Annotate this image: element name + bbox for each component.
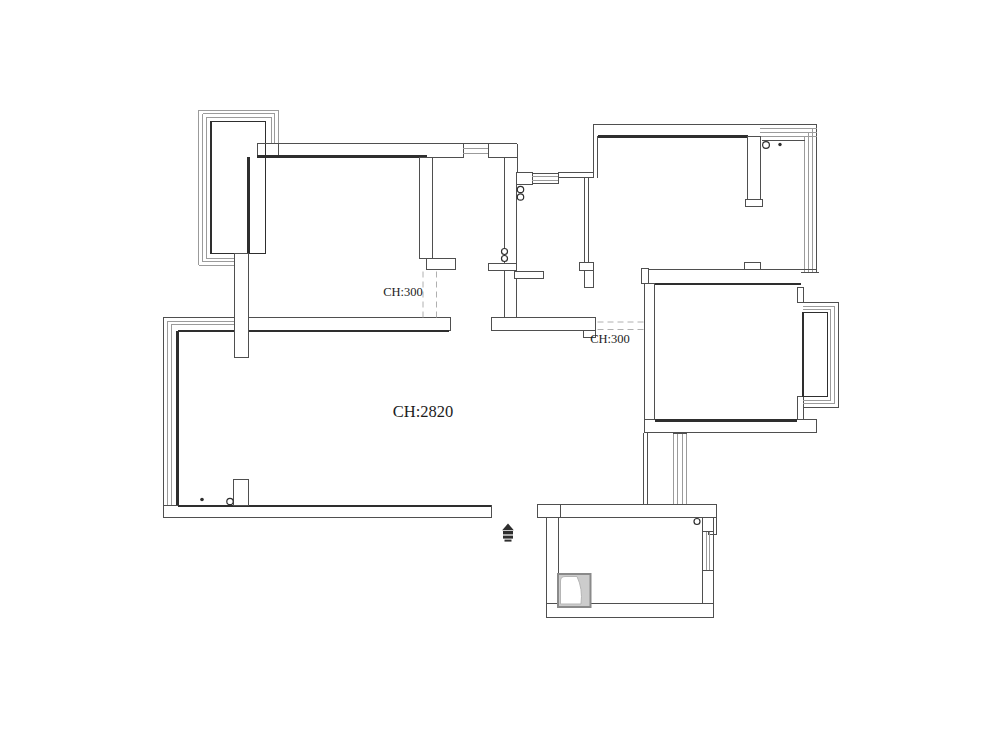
plumbing-pipe-circles (227, 142, 770, 525)
bay-window-right (803, 303, 838, 408)
corridor-bottom-walls (249, 318, 596, 338)
bathroom-walls (488, 158, 594, 318)
window-hatch-corridor-top (463, 144, 488, 158)
living-room-walls (163, 254, 492, 518)
bedroom-top-left-walls (249, 144, 518, 270)
shaft-window-hatch (643, 433, 687, 505)
kitchen-sink (558, 574, 591, 607)
bay-window-top-left (199, 110, 279, 265)
top-right-outline (594, 124, 819, 272)
bedroom-right-walls (642, 262, 817, 433)
label-ceiling-height: CH:2820 (393, 402, 454, 421)
room-top-right-walls (598, 137, 763, 207)
bathroom-top-walls (517, 124, 598, 184)
floor-plan-canvas: CH:300 CH:300 CH:2820 (0, 0, 1000, 750)
floor-plan-drawing: CH:300 CH:300 CH:2820 (0, 0, 1000, 750)
label-opening-height-right: CH:300 (590, 332, 630, 346)
door-opening-dashed-left (423, 272, 437, 318)
entry-marker-icon (502, 524, 514, 542)
label-opening-height-left: CH:300 (383, 285, 423, 299)
door-opening-dashed-right (598, 322, 645, 330)
